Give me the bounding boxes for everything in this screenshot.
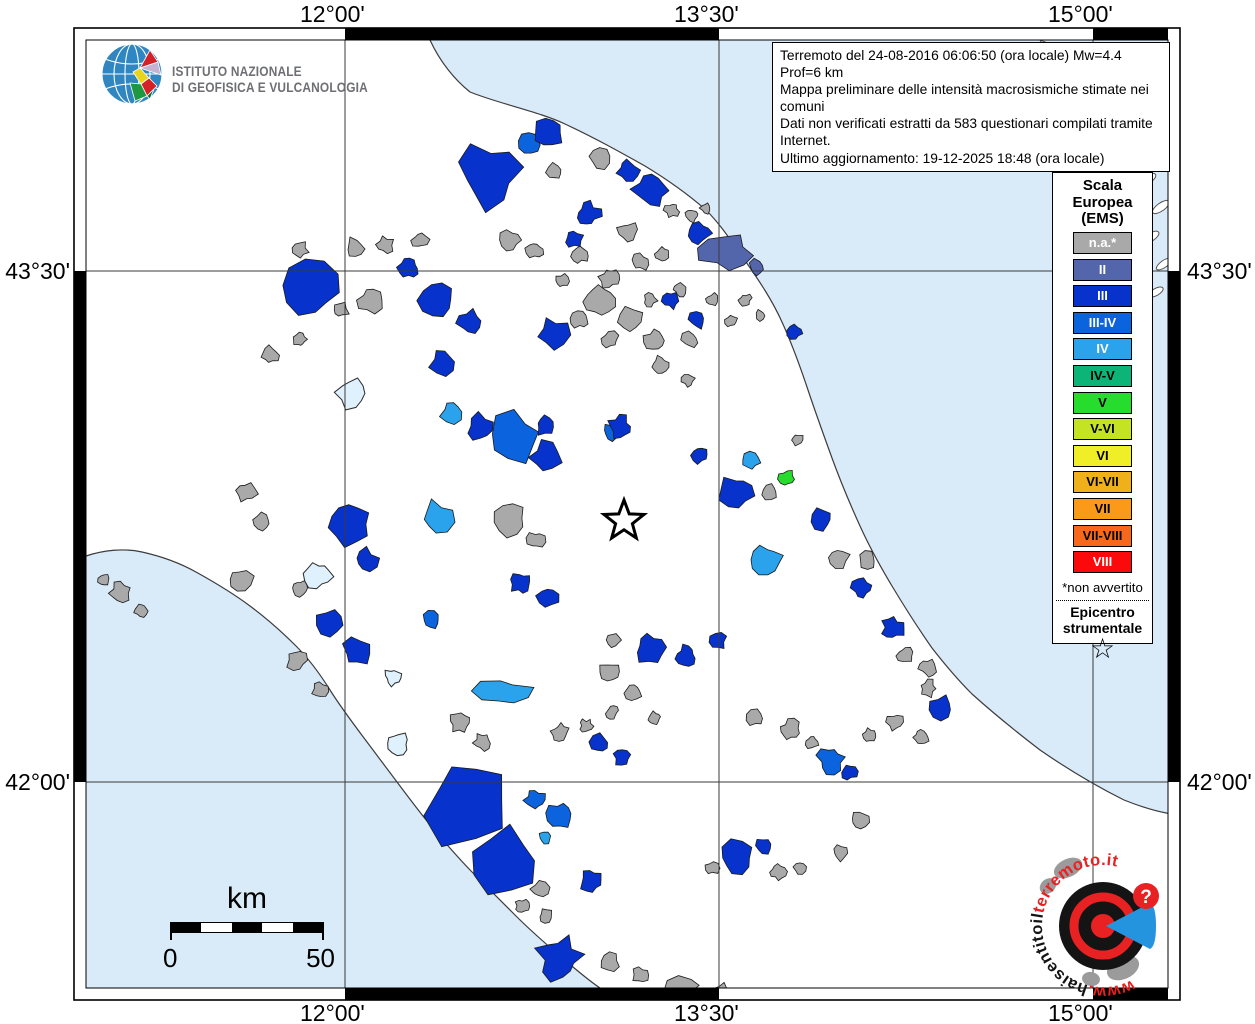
legend-title-3: (EMS) xyxy=(1053,211,1152,228)
legend-swatch-n.a.*: n.a.* xyxy=(1073,232,1132,254)
municipality xyxy=(860,551,874,570)
legend-footnote: *non avvertito xyxy=(1053,580,1152,595)
legend-swatch-VII-VIII: VII-VIII xyxy=(1073,525,1132,547)
earthquake-info-box: Terremoto del 24-08-2016 06:06:50 (ora l… xyxy=(772,42,1170,172)
axis-top-1330: 13°30' xyxy=(674,1,739,28)
legend-swatch-VIII: VIII xyxy=(1073,551,1132,573)
axis-top-12: 12°00' xyxy=(300,1,365,28)
municipality xyxy=(540,909,552,923)
info-line-data: Dati non verificati estratti da 583 ques… xyxy=(780,115,1162,149)
municipality xyxy=(526,533,546,547)
legend-divider xyxy=(1056,600,1149,601)
haisentito-logo: ? www.haisentitoilterremoto.it xyxy=(1028,848,1180,1000)
ems-legend: Scala Europea (EMS) n.a.*IIIIIIII-IVIVIV… xyxy=(1052,172,1153,644)
municipality xyxy=(515,899,529,912)
legend-swatches: n.a.*IIIIIIII-IVIVIV-VVV-VIVIVI-VIIVIIVI… xyxy=(1053,232,1152,573)
legend-epicenter-line1: Epicentro xyxy=(1053,604,1152,620)
question-mark: ? xyxy=(1140,887,1152,908)
axis-bottom-12: 12°00' xyxy=(300,1000,365,1024)
seismic-intensity-map-screen: 12°00' 13°30' 15°00' 12°00' 13°30' 15°00… xyxy=(0,0,1255,1024)
info-line-map: Mappa preliminare delle intensità macros… xyxy=(780,81,1162,115)
scale-bar-end: 50 xyxy=(306,943,335,974)
legend-swatch-III-IV: III-IV xyxy=(1073,312,1132,334)
axis-bottom-1330: 13°30' xyxy=(674,1000,739,1024)
axis-left-4330: 43°30' xyxy=(0,258,70,285)
legend-swatch-IV-V: IV-V xyxy=(1073,365,1132,387)
ingv-line1: ISTITUTO NAZIONALE xyxy=(172,63,368,79)
scale-bar-unit: km xyxy=(168,884,326,914)
legend-swatch-IV: IV xyxy=(1073,338,1132,360)
municipality xyxy=(511,574,530,594)
legend-swatch-VI: VI xyxy=(1073,445,1132,467)
legend-swatch-II: II xyxy=(1073,259,1132,281)
legend-title-1: Scala xyxy=(1053,178,1152,195)
axis-right-4200: 42°00' xyxy=(1187,769,1252,796)
scale-bar: km 0 50 xyxy=(168,884,326,933)
scale-bar-start: 0 xyxy=(163,943,177,974)
ingv-logo-text: ISTITUTO NAZIONALE DI GEOFISICA E VULCAN… xyxy=(172,63,368,95)
legend-swatch-VII: VII xyxy=(1073,498,1132,520)
axis-left-4200: 42°00' xyxy=(0,769,70,796)
ingv-line2: DI GEOFISICA E VULCANOLOGIA xyxy=(172,79,368,95)
legend-swatch-VI-VII: VI-VII xyxy=(1073,471,1132,493)
legend-swatch-III: III xyxy=(1073,285,1132,307)
ingv-logo-globe xyxy=(100,42,164,106)
legend-title-2: Europea xyxy=(1053,195,1152,212)
axis-right-4330: 43°30' xyxy=(1187,258,1252,285)
legend-swatch-V: V xyxy=(1073,392,1132,414)
epicenter-star-icon: ☆ xyxy=(1053,636,1152,662)
info-line-event: Terremoto del 24-08-2016 06:06:50 (ora l… xyxy=(780,47,1162,81)
info-line-updated: Ultimo aggiornamento: 19-12-2025 18:48 (… xyxy=(780,150,1162,167)
axis-top-15: 15°00' xyxy=(1048,1,1113,28)
legend-swatch-V-VI: V-VI xyxy=(1073,418,1132,440)
scale-bar-segments: 0 50 xyxy=(170,922,324,933)
axis-bottom-15: 15°00' xyxy=(1048,1000,1113,1024)
